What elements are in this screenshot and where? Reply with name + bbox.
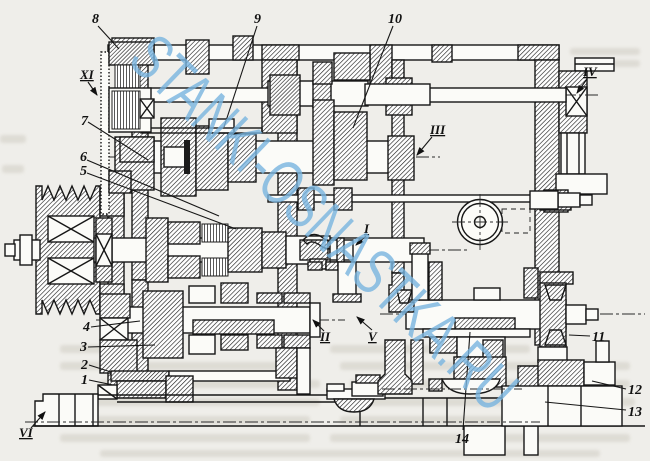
svg-text:8: 8 xyxy=(92,12,99,27)
svg-text:7: 7 xyxy=(81,114,89,129)
svg-text:2: 2 xyxy=(80,358,88,373)
svg-text:9: 9 xyxy=(254,12,261,27)
svg-text:6: 6 xyxy=(80,150,87,165)
svg-text:II: II xyxy=(319,329,331,344)
svg-text:10: 10 xyxy=(388,12,402,27)
svg-text:11: 11 xyxy=(592,330,605,345)
svg-text:3: 3 xyxy=(79,340,87,355)
svg-text:5: 5 xyxy=(80,164,87,179)
svg-text:1: 1 xyxy=(81,373,88,388)
svg-text:IV: IV xyxy=(582,64,598,79)
svg-text:13: 13 xyxy=(628,405,642,420)
svg-text:XI: XI xyxy=(79,67,95,82)
svg-text:V: V xyxy=(368,329,378,344)
svg-text:14: 14 xyxy=(455,432,469,447)
svg-text:4: 4 xyxy=(82,320,90,335)
svg-text:III: III xyxy=(429,122,446,137)
svg-text:12: 12 xyxy=(628,383,642,398)
